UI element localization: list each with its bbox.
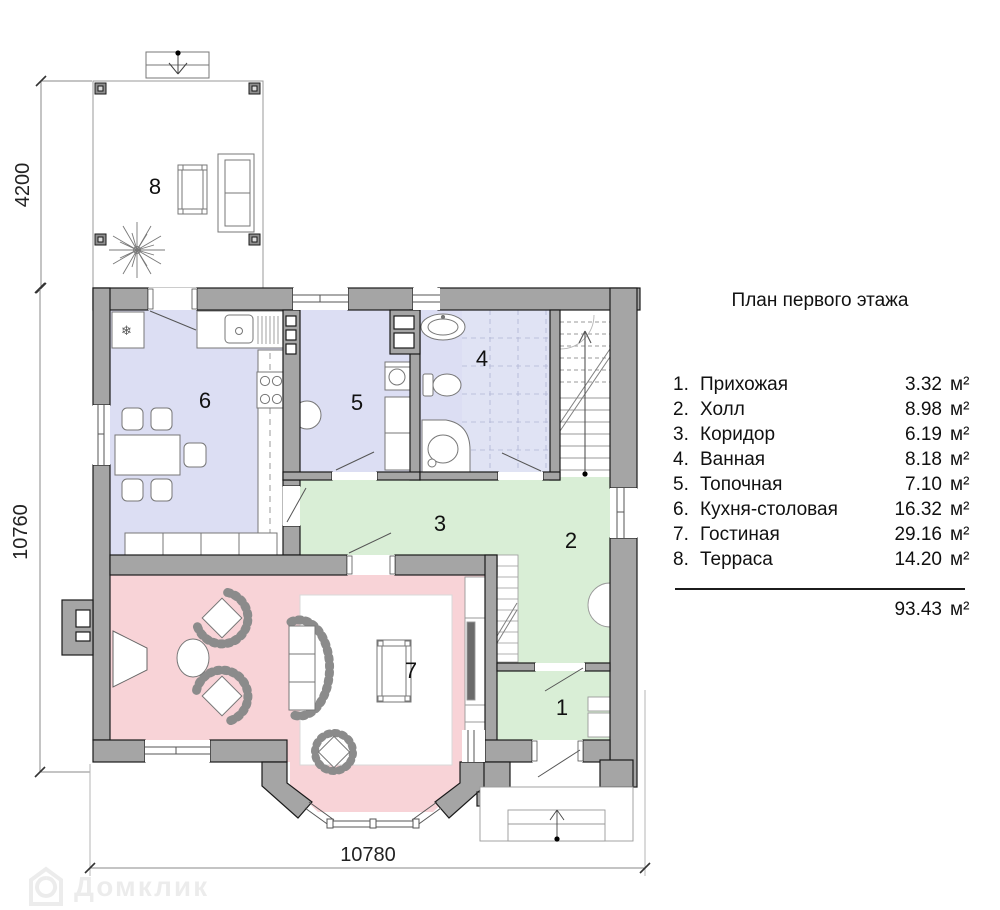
terrace-sofa	[218, 154, 254, 232]
room-label-3: 3	[434, 511, 446, 536]
legend-row-area: 6.19	[870, 424, 942, 446]
legend-row-num: 5.	[673, 474, 700, 496]
page-title: План первого этажа	[660, 276, 980, 312]
legend-row-unit: м²	[942, 549, 980, 571]
dining-table	[115, 435, 180, 475]
stove	[257, 372, 284, 408]
legend-row: 7. Гостиная 29.16 м²	[660, 524, 980, 549]
dimension-bottom-width: 10780	[340, 844, 396, 866]
tv	[467, 622, 475, 700]
legend: План первого этажа 1. Прихожая 3.32 м² 2…	[660, 276, 980, 621]
legend-row-area: 14.20	[870, 549, 942, 571]
legend-row-num: 7.	[673, 524, 700, 546]
legend-total: 93.43 м²	[660, 599, 980, 621]
legend-row-num: 3.	[673, 424, 700, 446]
legend-row-num: 6.	[673, 499, 700, 521]
dimension-terrace-height: 4200	[12, 163, 34, 208]
snowflake-icon: ❄	[121, 324, 132, 339]
legend-divider	[675, 588, 965, 590]
room-label-5: 5	[351, 390, 363, 415]
legend-row-area: 29.16	[870, 524, 942, 546]
room-label-4: 4	[476, 346, 488, 371]
room1-shelf	[588, 713, 610, 737]
entry-porch	[480, 787, 633, 842]
room-label-8: 8	[149, 174, 161, 199]
room-label-6: 6	[199, 388, 211, 413]
total-unit: м²	[942, 599, 980, 621]
legend-row-unit: м²	[942, 524, 980, 546]
watermark-house-icon	[28, 866, 64, 908]
watermark: Домклик	[28, 866, 209, 908]
toilet	[423, 374, 461, 396]
legend-row-unit: м²	[942, 424, 980, 446]
dimension-left-height: 10760	[10, 504, 32, 560]
legend-row-name: Кухня-столовая	[700, 499, 870, 521]
kitchen-cabinets	[125, 533, 277, 555]
terrace-table	[178, 165, 207, 214]
legend-row: 6. Кухня-столовая 16.32 м²	[660, 499, 980, 524]
legend-row-num: 2.	[673, 399, 700, 421]
legend-rows: 1. Прихожая 3.32 м² 2. Холл 8.98 м² 3. К…	[660, 374, 980, 574]
legend-row-area: 8.18	[870, 449, 942, 471]
terrace-entry-arrow	[146, 50, 209, 78]
legend-row-unit: м²	[942, 374, 980, 396]
legend-row-name: Топочная	[700, 474, 870, 496]
legend-row-unit: м²	[942, 499, 980, 521]
legend-row: 3. Коридор 6.19 м²	[660, 424, 980, 449]
legend-row-num: 8.	[673, 549, 700, 571]
coffee-table	[177, 639, 209, 677]
room-label-7: 7	[405, 658, 417, 683]
legend-row-name: Гостиная	[700, 524, 870, 546]
room1-shelf	[588, 697, 610, 711]
room-label-1: 1	[556, 695, 568, 720]
legend-row: 1. Прихожая 3.32 м²	[660, 374, 980, 399]
legend-row: 2. Холл 8.98 м²	[660, 399, 980, 424]
legend-row-area: 8.98	[870, 399, 942, 421]
corner-bathtub	[422, 420, 470, 472]
legend-row-name: Терраса	[700, 549, 870, 571]
legend-row-name: Коридор	[700, 424, 870, 446]
legend-row-unit: м²	[942, 474, 980, 496]
watermark-text: Домклик	[74, 871, 209, 903]
terrace-room	[93, 50, 263, 288]
floor-plan-page: 4200 10760 10780	[0, 0, 1000, 910]
legend-row: 8. Терраса 14.20 м²	[660, 549, 980, 574]
legend-row-unit: м²	[942, 399, 980, 421]
total-area: 93.43	[870, 599, 942, 621]
bathroom-tiles	[462, 310, 550, 472]
legend-row-name: Холл	[700, 399, 870, 421]
legend-row-area: 7.10	[870, 474, 942, 496]
bathroom-sink	[421, 314, 465, 340]
washing-machine	[385, 362, 410, 390]
legend-row: 4. Ванная 8.18 м²	[660, 449, 980, 474]
legend-row-area: 16.32	[870, 499, 942, 521]
legend-row-area: 3.32	[870, 374, 942, 396]
legend-row-name: Ванная	[700, 449, 870, 471]
legend-row-name: Прихожая	[700, 374, 870, 396]
legend-row-unit: м²	[942, 449, 980, 471]
room-label-2: 2	[565, 528, 577, 553]
legend-row-num: 1.	[673, 374, 700, 396]
legend-row-num: 4.	[673, 449, 700, 471]
legend-row: 5. Топочная 7.10 м²	[660, 474, 980, 499]
